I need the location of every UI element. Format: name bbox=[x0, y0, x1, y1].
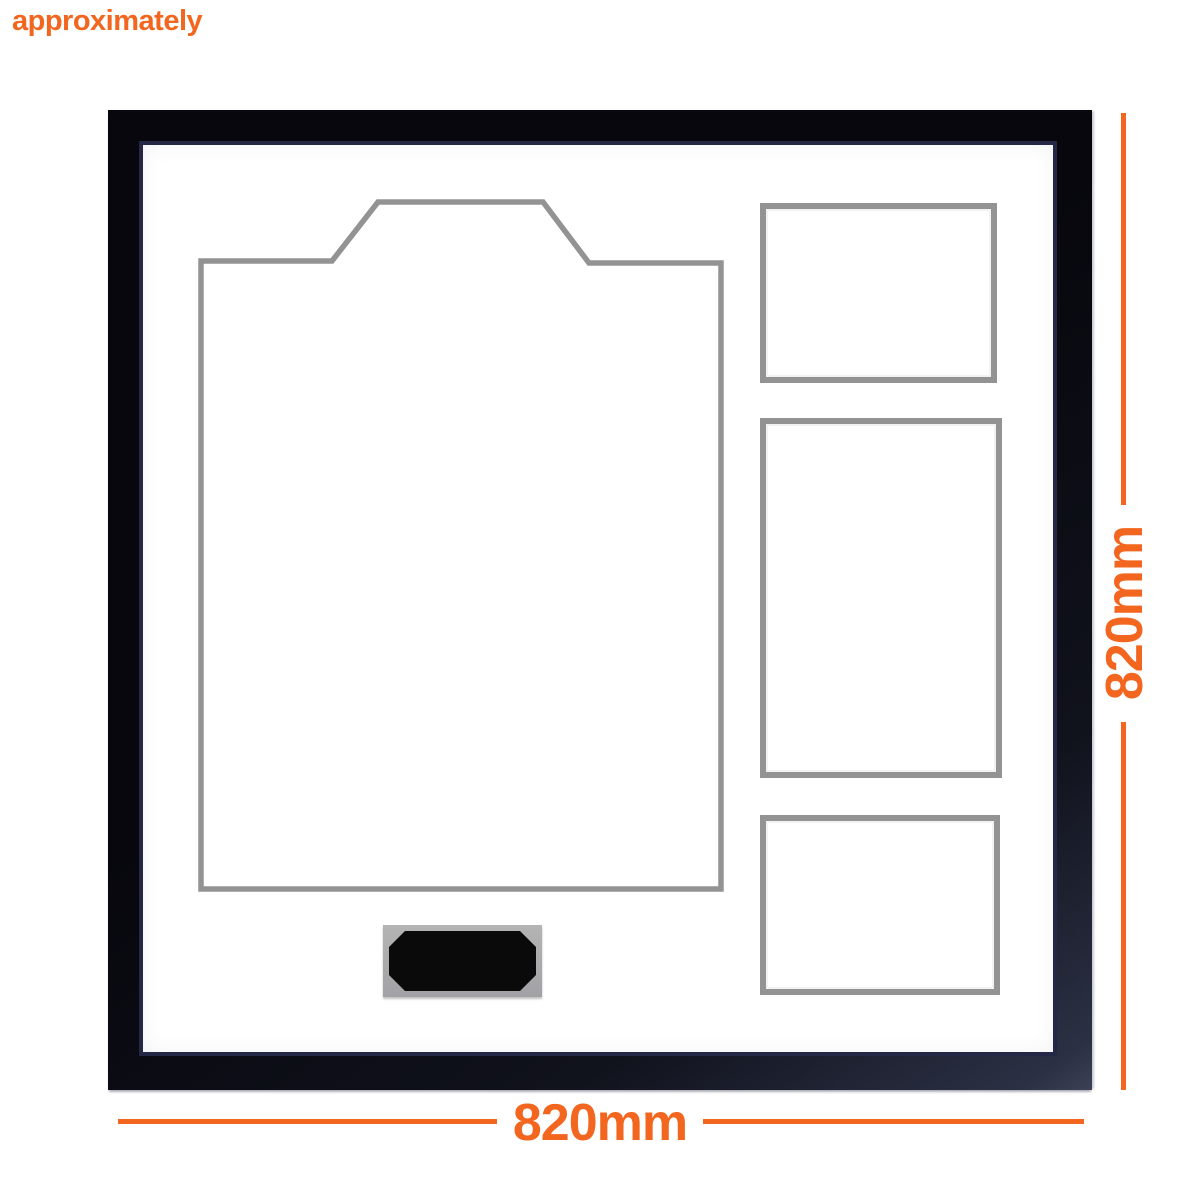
bottom-dimension-line-right bbox=[703, 1119, 1084, 1124]
photo-aperture-bottom bbox=[760, 815, 1000, 995]
bottom-dimension-line-left bbox=[118, 1119, 497, 1124]
right-dimension-label: 820mm bbox=[1099, 526, 1151, 700]
mat-board bbox=[143, 145, 1053, 1052]
bottom-dimension-label: 820mm bbox=[497, 1097, 703, 1149]
photo-aperture-top bbox=[760, 203, 997, 383]
title-plaque bbox=[383, 925, 542, 997]
jersey-aperture-outline bbox=[201, 202, 721, 889]
approximately-note: approximately bbox=[12, 5, 202, 38]
product-image: approximately 820mm 820mm bbox=[0, 0, 1200, 1200]
right-dimension-line-top bbox=[1121, 113, 1126, 505]
picture-frame bbox=[108, 110, 1092, 1090]
photo-aperture-middle bbox=[760, 418, 1002, 778]
plaque-face bbox=[389, 931, 536, 991]
right-dimension-line-bottom bbox=[1121, 722, 1126, 1090]
